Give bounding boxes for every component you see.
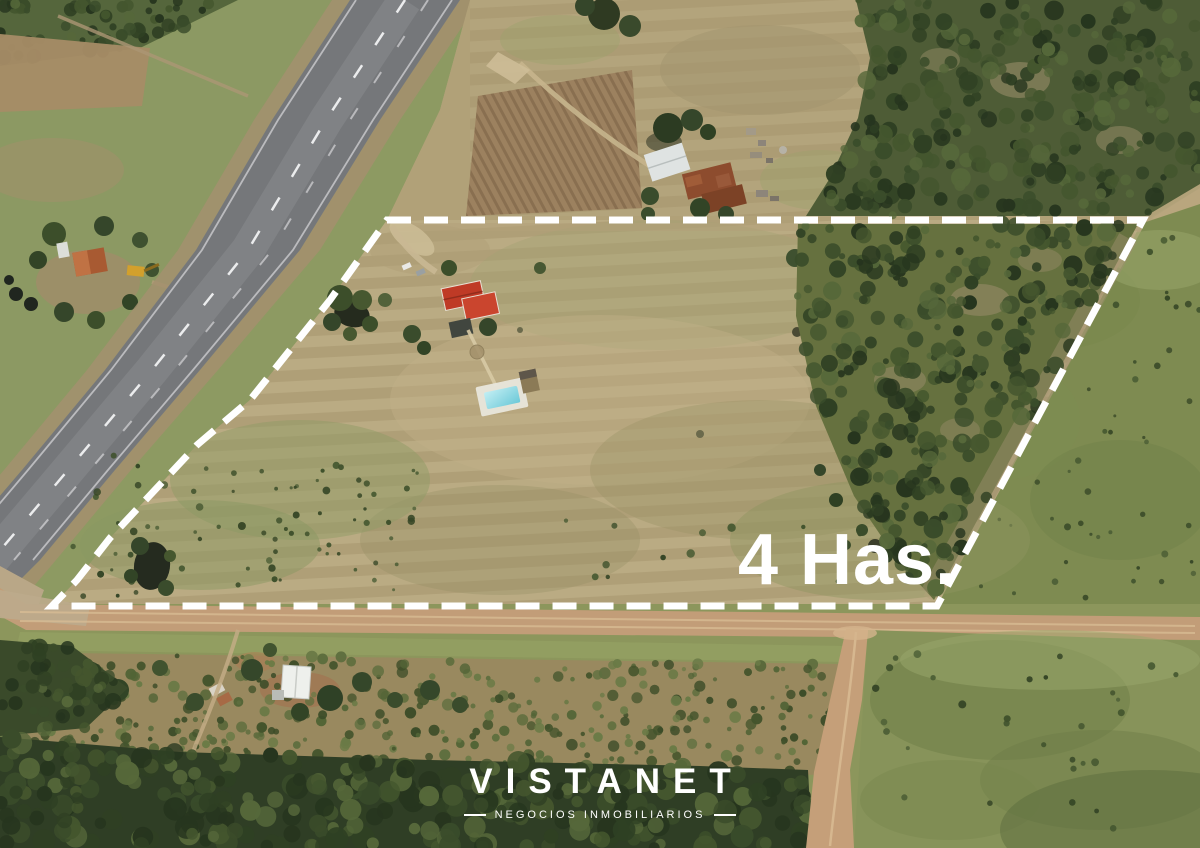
brand-logo: VISTANET NEGOCIOS INMOBILIARIOS: [0, 764, 1200, 821]
brand-tagline: NEGOCIOS INMOBILIARIOS: [0, 809, 1200, 821]
area-label: 4 Has.: [738, 524, 956, 596]
garden-ring: [470, 345, 484, 359]
tagline-right-dash: [714, 814, 736, 816]
aerial-scene: [0, 0, 1200, 848]
brand-tagline-text: NEGOCIOS INMOBILIARIOS: [495, 809, 706, 821]
aerial-photo: 4 Has. VISTANET NEGOCIOS INMOBILIARIOS: [0, 0, 1200, 848]
brand-name: VISTANET: [469, 764, 743, 799]
tagline-left-dash: [464, 814, 486, 816]
